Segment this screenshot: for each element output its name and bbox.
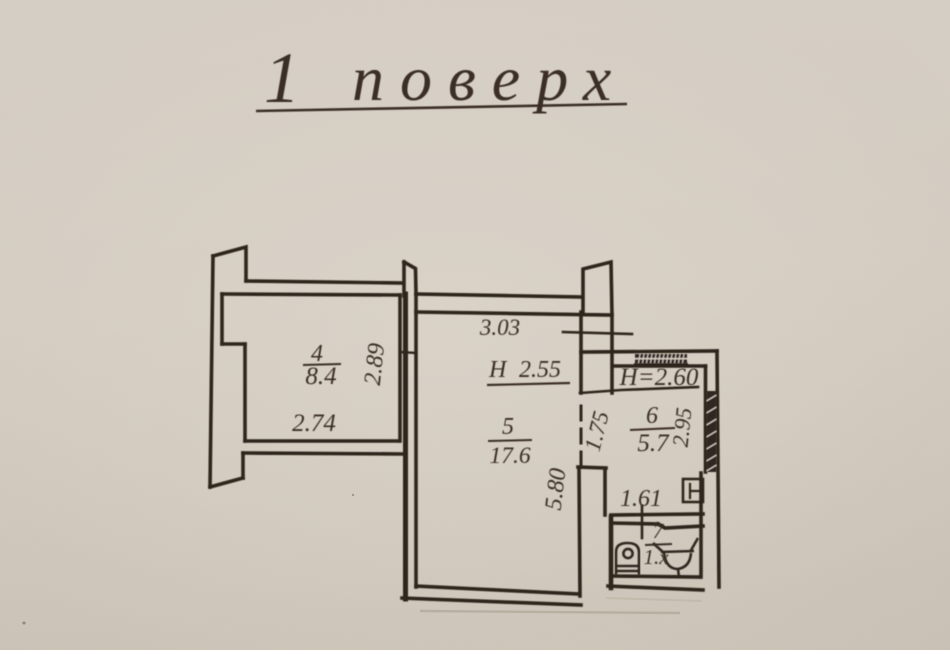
svg-text:Н=2.60: Н=2.60	[619, 364, 699, 391]
svg-text:1: 1	[264, 38, 300, 118]
svg-text:6: 6	[646, 403, 658, 429]
svg-text:2.89: 2.89	[360, 342, 390, 386]
svg-text:Н: Н	[488, 357, 508, 383]
svg-text:1.х: 1.х	[643, 545, 669, 569]
svg-text:8.4: 8.4	[305, 363, 336, 390]
svg-text:17.6: 17.6	[489, 443, 530, 469]
svg-text:5.7: 5.7	[637, 430, 670, 457]
svg-text:5.80: 5.80	[541, 467, 572, 512]
svg-text:2.74: 2.74	[292, 410, 336, 437]
svg-text:2.55: 2.55	[519, 357, 561, 383]
svg-text:3.03: 3.03	[479, 315, 520, 340]
svg-text:5: 5	[502, 414, 514, 440]
svg-text:1.61: 1.61	[620, 486, 662, 512]
svg-text:2.95: 2.95	[668, 406, 697, 448]
svg-text:поверх: поверх	[352, 43, 627, 114]
svg-text:7: 7	[653, 519, 665, 543]
